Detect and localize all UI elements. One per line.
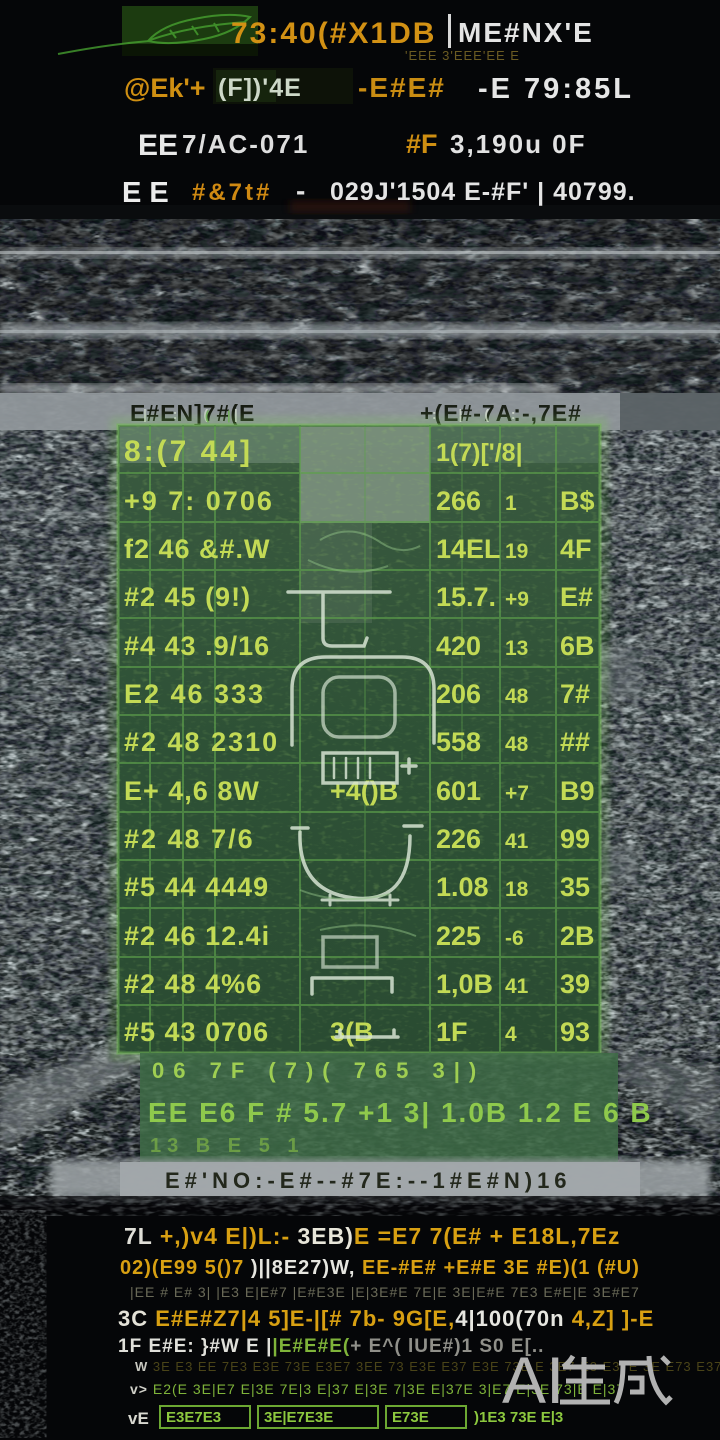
svg-text:#F: #F xyxy=(406,129,438,159)
svg-text:-6: -6 xyxy=(505,927,524,950)
svg-text:226: 226 xyxy=(436,824,481,854)
svg-text:#2 48 7/6: #2 48 7/6 xyxy=(124,824,255,854)
svg-text:+9 7: 0706: +9 7: 0706 xyxy=(124,486,274,516)
svg-text:E#: E# xyxy=(560,582,593,612)
svg-text:13: 13 xyxy=(505,637,528,660)
svg-text:7#: 7# xyxy=(560,679,590,709)
svg-text:13 B E 5 1: 13 B E 5 1 xyxy=(150,1135,305,1157)
svg-text:02)(E99 5()7 )||8E27)W, EE-#E#: 02)(E99 5()7 )||8E27)W, EE-#E# +E#E 3E #… xyxy=(120,1257,640,1279)
svg-text:#&7t#: #&7t# xyxy=(192,179,272,206)
svg-text:4F: 4F xyxy=(560,534,592,564)
svg-text:73:40(#X1DB: 73:40(#X1DB xyxy=(231,17,436,50)
svg-text:225: 225 xyxy=(436,921,481,951)
svg-text:3(B: 3(B xyxy=(330,1017,374,1047)
svg-text:18: 18 xyxy=(505,878,529,901)
svg-text:'EEE 3'EEE'EE E: 'EEE 3'EEE'EE E xyxy=(405,48,520,63)
svg-text:266: 266 xyxy=(436,486,481,516)
svg-text:+7: +7 xyxy=(505,782,529,805)
svg-text:029J'1504 E-#F' | 40799.: 029J'1504 E-#F' | 40799. xyxy=(330,178,636,206)
svg-text:15.7.: 15.7. xyxy=(436,582,496,612)
svg-text:EE: EE xyxy=(122,177,177,209)
svg-text:7/AC-071: 7/AC-071 xyxy=(182,129,309,159)
svg-text:93: 93 xyxy=(560,1017,590,1047)
svg-text:E2 46 333: E2 46 333 xyxy=(124,679,265,709)
svg-text:#2 48 2310: #2 48 2310 xyxy=(124,727,279,757)
svg-text:1: 1 xyxy=(505,492,517,515)
svg-text:B$: B$ xyxy=(560,486,595,516)
svg-text:2B: 2B xyxy=(560,921,595,951)
svg-text:#2 45 (9!): #2 45 (9!) xyxy=(124,582,251,612)
svg-text:E+ 4,6 8W: E+ 4,6 8W xyxy=(124,776,260,806)
svg-text:206: 206 xyxy=(436,679,481,709)
svg-text:39: 39 xyxy=(560,969,590,999)
svg-text:(F])'4E: (F])'4E xyxy=(218,74,302,102)
svg-text:6B: 6B xyxy=(560,631,595,661)
svg-text:#5 43 0706: #5 43 0706 xyxy=(124,1017,269,1047)
svg-text:-: - xyxy=(296,175,305,206)
svg-text:EE E6 F # 5.7 +1 3| 1.0B 1.2 E: EE E6 F # 5.7 +1 3| 1.0B 1.2 E 6 B xyxy=(148,1097,653,1128)
svg-text:1F: 1F xyxy=(436,1017,468,1047)
svg-text:EE: EE xyxy=(138,129,178,162)
svg-text:#4 43 .9/16: #4 43 .9/16 xyxy=(124,631,270,661)
svg-text:|EE # E# 3| |E3 E|E#7 |E#E3E |: |EE # E# 3| |E3 E|E#7 |E#E3E |E|3E#E 7E|… xyxy=(130,1284,640,1300)
svg-text:7L +,)v4 E|)L:- 3EB)E =E7 7(E#: 7L +,)v4 E|)L:- 3EB)E =E7 7(E# + E18L,7E… xyxy=(124,1223,620,1249)
svg-text:#2 46 12.4i: #2 46 12.4i xyxy=(124,921,270,951)
svg-text:-E#E#: -E#E# xyxy=(358,72,446,103)
svg-text:E3E7E3: E3E7E3 xyxy=(166,1409,221,1426)
svg-text:601: 601 xyxy=(436,776,481,806)
svg-text:19: 19 xyxy=(505,540,528,563)
svg-text:-E 79:85L: -E 79:85L xyxy=(478,73,634,105)
svg-text:3E|E7E3E: 3E|E7E3E xyxy=(264,1409,333,1426)
svg-text:f2 46 &#.W: f2 46 &#.W xyxy=(124,534,271,564)
svg-text:06 7F (7)( 765 3|): 06 7F (7)( 765 3|) xyxy=(152,1058,485,1083)
svg-text:48: 48 xyxy=(505,733,529,756)
svg-text:ME#NX'E: ME#NX'E xyxy=(458,17,594,48)
svg-text:#2 48 4%6: #2 48 4%6 xyxy=(124,969,262,999)
svg-text:41: 41 xyxy=(505,830,529,853)
svg-text:@Ek'+: @Ek'+ xyxy=(124,73,206,103)
svg-text:1.08: 1.08 xyxy=(436,872,489,902)
svg-text:+9: +9 xyxy=(505,588,529,611)
svg-text:E#'NO:-E#--#7E:--1#E#N)16: E#'NO:-E#--#7E:--1#E#N)16 xyxy=(165,1168,572,1193)
svg-text:41: 41 xyxy=(505,975,529,998)
svg-text:420: 420 xyxy=(436,631,481,661)
svg-text:E73E: E73E xyxy=(392,1409,429,1426)
svg-text:558: 558 xyxy=(436,727,481,757)
svg-text:1(7)['/8|: 1(7)['/8| xyxy=(436,439,523,467)
svg-text:48: 48 xyxy=(505,685,529,708)
svg-text:35: 35 xyxy=(560,872,590,902)
svg-text:+4()B: +4()B xyxy=(330,776,398,806)
svg-text:##: ## xyxy=(560,727,590,757)
svg-text:3,190u 0F: 3,190u 0F xyxy=(450,129,587,159)
svg-text:4: 4 xyxy=(505,1023,517,1046)
svg-text:B9: B9 xyxy=(560,776,595,806)
svg-text:8:(7 44]: 8:(7 44] xyxy=(124,435,253,468)
svg-text:3C E#E#Z7|4 5]E-|[# 7b- 9G[E,4: 3C E#E#Z7|4 5]E-|[# 7b- 9G[E,4|100(70n 4… xyxy=(118,1306,654,1331)
svg-text:1,0B: 1,0B xyxy=(436,969,493,999)
svg-text:#5 44 4449: #5 44 4449 xyxy=(124,872,269,902)
svg-text:14EL: 14EL xyxy=(436,534,501,564)
svg-text:AI: AI xyxy=(502,1343,564,1417)
svg-text:99: 99 xyxy=(560,824,590,854)
svg-text:vE: vE xyxy=(128,1409,149,1428)
svg-text:1F E#E: }#W E ||E#E#E(+ E^( lU: 1F E#E: }#W E ||E#E#E(+ E^( lUE#)1 S0 E[… xyxy=(118,1336,544,1357)
